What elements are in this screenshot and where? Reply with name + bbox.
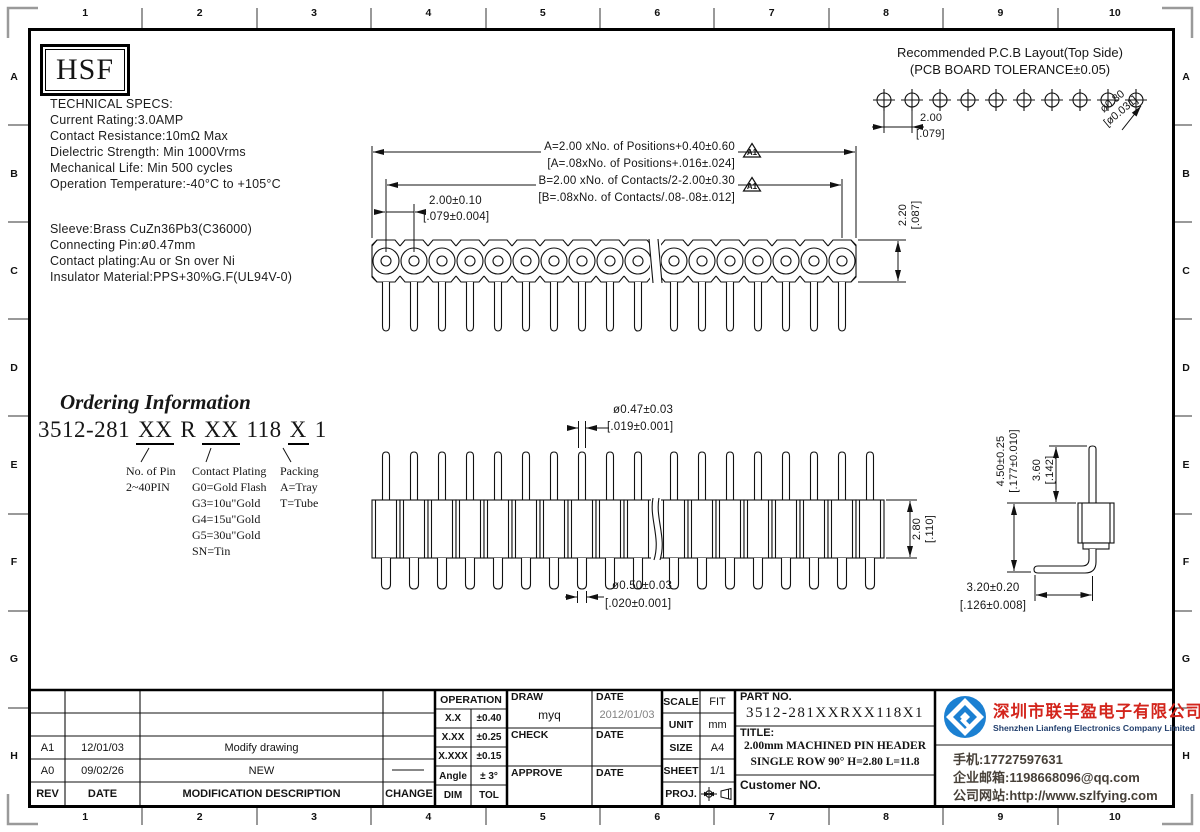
rev-id	[30, 713, 65, 736]
tolerance-title: OPERATION	[435, 690, 507, 709]
spec-line: Mechanical Life: Min 500 cycles	[50, 160, 281, 176]
company-name-cn: 深圳市联丰盈电子有限公司	[993, 698, 1200, 722]
zone-label: 9	[943, 807, 1057, 827]
zone-label: D	[1175, 319, 1197, 416]
company-name-en: Shenzhen Lianfeng Electronics Company Li…	[993, 723, 1195, 733]
zone-label: 6	[600, 807, 714, 827]
rev-date: 12/01/03	[65, 736, 140, 759]
tolerance-value: ± 3°	[471, 767, 507, 786]
rev-change	[383, 759, 435, 782]
pin-dia-dim-inch: [.019±0.001]	[607, 421, 673, 433]
specs-lines: Current Rating:3.0AMPContact Resistance:…	[50, 112, 281, 192]
title-label: TITLE:	[740, 727, 774, 739]
draw-date-value: 2012/01/03	[592, 703, 662, 727]
zone-label: C	[1175, 222, 1197, 319]
zone-label: 5	[486, 807, 600, 827]
rev-header-cell: MODIFICATION DESCRIPTION	[140, 782, 383, 805]
zone-label: 9	[943, 3, 1057, 23]
zone-label: F	[3, 514, 25, 611]
tolerance-dim: X.XX	[435, 728, 471, 747]
code-packing: X	[288, 417, 309, 445]
rev-description	[140, 713, 383, 736]
tolerance-value: TOL	[471, 786, 507, 805]
zone-label: E	[1175, 417, 1197, 514]
company-website: 公司网站:http://www.szlfying.com	[953, 785, 1158, 804]
rev-header-cell: REV	[30, 782, 65, 805]
zone-numbers-top: 12345678910	[28, 3, 1172, 23]
technical-specs: TECHNICAL SPECS: Current Rating:3.0AMPCo…	[50, 96, 281, 192]
packing-option: A=Tray	[280, 479, 319, 495]
size-label: SIZE	[662, 736, 700, 759]
svg-text:A1: A1	[747, 182, 758, 191]
rev-flag-b: A1	[742, 176, 762, 193]
rev-description: NEW	[140, 759, 383, 782]
specs-title: TECHNICAL SPECS:	[50, 96, 281, 112]
pin-count-legend: No. of Pin 2~40PIN	[126, 463, 176, 495]
customer-no-label: Customer NO.	[740, 778, 821, 792]
body-height-dim: 2.20 [.087]	[895, 189, 925, 241]
zone-label: 8	[829, 3, 943, 23]
plating-option: G5=30u"Gold	[192, 527, 266, 543]
zone-label: A	[3, 28, 25, 125]
plating-option: G0=Gold Flash	[192, 479, 266, 495]
zone-numbers-bottom: 12345678910	[28, 807, 1172, 827]
rev-description: Modify drawing	[140, 736, 383, 759]
zone-letters-left: ABCDEFGH	[3, 28, 25, 805]
rev-change	[383, 713, 435, 736]
tolerance-value: ±0.25	[471, 728, 507, 747]
rev-date	[65, 713, 140, 736]
approve-label: APPROVE	[511, 767, 562, 779]
rev-date	[65, 690, 140, 713]
spec-line: Operation Temperature:-40°C to +105°C	[50, 176, 281, 192]
rev-header-cell: DATE	[65, 782, 140, 805]
leg-length-dim-inch: [.126±0.008]	[941, 600, 1045, 612]
projection-label: PROJ.	[662, 782, 700, 805]
rev-id: A1	[30, 736, 65, 759]
rev-id	[30, 690, 65, 713]
company-phone: 手机:17727597631	[953, 749, 1063, 768]
spec-line: Current Rating:3.0AMP	[50, 112, 281, 128]
zone-label: 3	[257, 807, 371, 827]
zone-label: 5	[486, 3, 600, 23]
part-no-value: 3512-281XXRXX118X1	[735, 701, 935, 725]
spec-line: Dielectric Strength: Min 1000Vrms	[50, 144, 281, 160]
zone-label: 1	[28, 3, 142, 23]
draw-value: myq	[507, 703, 592, 727]
dim-a-formula-inch: [A=.08xNo. of Positions+.016±.024]	[544, 156, 738, 173]
zone-label: B	[1175, 125, 1197, 222]
projection-symbol	[700, 782, 735, 805]
sheet-label: SHEET	[662, 759, 700, 782]
hsf-logo-box: HSF	[40, 44, 130, 96]
part-title-line1: 2.00mm MACHINED PIN HEADER	[735, 739, 935, 753]
zone-label: 6	[600, 3, 714, 23]
rev-description	[140, 690, 383, 713]
draw-date-label: DATE	[596, 691, 624, 703]
tolerance-dim: Angle	[435, 767, 471, 786]
rev-change	[383, 736, 435, 759]
zone-label: A	[1175, 28, 1197, 125]
tolerance-dim: X.X	[435, 709, 471, 728]
dim-a-formula: A=2.00 xNo. of Positions+0.40±0.60	[541, 139, 738, 156]
revision-table: A1 12/01/03 Modify drawing A0 09/02/26 N…	[30, 690, 435, 782]
rev-change	[383, 690, 435, 713]
engineering-drawing-sheet: { "border": { "cols": ["1","2","3","4","…	[0, 0, 1200, 832]
sheet-value: 1/1	[700, 759, 735, 782]
zone-label: 4	[371, 3, 485, 23]
packing-option: T=Tube	[280, 495, 319, 511]
plating-option: G3=10u"Gold	[192, 495, 266, 511]
pcb-pitch-dim-inch: [.079]	[916, 128, 945, 140]
tail-dia-dim-inch: [.020±0.001]	[605, 598, 671, 610]
plating-option: SN=Tin	[192, 543, 266, 559]
packing-legend: Packing A=TrayT=Tube	[280, 463, 319, 511]
ordering-title: Ordering Information	[60, 390, 251, 415]
pitch-dim-inch: [.079±0.004]	[423, 211, 489, 223]
hsf-logo-text: HSF	[56, 53, 114, 87]
material-line: Sleeve:Brass CuZn36Pb3(C36000)	[50, 221, 292, 237]
zone-label: 3	[257, 3, 371, 23]
code-prefix: 3512-281	[38, 417, 130, 442]
revision-table-header: REVDATEMODIFICATION DESCRIPTIONCHANGE	[30, 782, 435, 805]
plating-legend: Contact Plating G0=Gold FlashG3=10u"Gold…	[192, 463, 266, 559]
company-logo-icon	[941, 693, 989, 741]
zone-label: 1	[28, 807, 142, 827]
zone-label: 10	[1058, 3, 1172, 23]
material-line: Contact plating:Au or Sn over Ni	[50, 253, 292, 269]
scale-label: SCALE	[662, 690, 700, 713]
total-height-dim: 4.50±0.25 [.177±0.010]	[993, 415, 1023, 507]
pitch-dim: 2.00±0.10	[429, 195, 482, 207]
approve-date-label: DATE	[596, 767, 624, 779]
code-pin-count: XX	[136, 417, 174, 445]
dim-b-formula-inch: [B=.08xNo. of Contacts/.08-.08±.012]	[535, 190, 738, 207]
leg-length-dim: 3.20±0.20	[947, 582, 1039, 594]
company-email: 企业邮箱:1198668096@qq.com	[953, 767, 1140, 786]
check-label: CHECK	[511, 729, 548, 741]
zone-label: F	[1175, 514, 1197, 611]
rev-header-cell: CHANGE	[383, 782, 435, 805]
zone-label: G	[3, 611, 25, 708]
code-mid: R	[180, 417, 196, 442]
svg-text:A1: A1	[747, 148, 758, 157]
zone-label: 8	[829, 807, 943, 827]
zone-label: D	[3, 319, 25, 416]
pin-dia-dim: ø0.47±0.03	[613, 404, 673, 416]
spec-line: Contact Resistance:10mΩ Max	[50, 128, 281, 144]
tolerance-dim: DIM	[435, 786, 471, 805]
unit-label: UNIT	[662, 713, 700, 736]
ordering-code: 3512-281XXRXX118X1	[38, 417, 333, 443]
zone-label: C	[3, 222, 25, 319]
zone-label: 10	[1058, 807, 1172, 827]
draw-label: DRAW	[511, 691, 543, 703]
material-line: Insulator Material:PPS+30%G.F(UL94V-0)	[50, 269, 292, 285]
tolerance-value: ±0.40	[471, 709, 507, 728]
rev-date: 09/02/26	[65, 759, 140, 782]
tail-dia-dim: ø0.50±0.03	[612, 580, 672, 592]
material-specs: Sleeve:Brass CuZn36Pb3(C36000)Connecting…	[50, 221, 292, 285]
zone-letters-right: ABCDEFGH	[1175, 28, 1197, 805]
zone-label: G	[1175, 611, 1197, 708]
check-date-label: DATE	[596, 729, 624, 741]
tolerance-value: ±0.15	[471, 747, 507, 766]
tolerance-table: X.X ±0.40 X.XX ±0.25 X.XXX ±0.15 Angle ±…	[435, 709, 507, 805]
zone-label: 2	[142, 3, 256, 23]
part-title-line2: SINGLE ROW 90° H=2.80 L=11.8	[735, 755, 935, 769]
formula-dims: A=2.00 xNo. of Positions+0.40±0.60 [A=.0…	[490, 139, 738, 207]
code-series: 118	[246, 417, 281, 442]
code-suffix: 1	[315, 417, 327, 442]
zone-label: E	[3, 417, 25, 514]
zone-label: 4	[371, 807, 485, 827]
code-plating: XX	[202, 417, 240, 445]
scale-value: FIT	[700, 690, 735, 713]
rev-flag-a: A1	[742, 142, 762, 159]
third-angle-projection-icon	[701, 786, 735, 802]
unit-value: mm	[700, 713, 735, 736]
zone-label: H	[3, 708, 25, 805]
tolerance-dim: X.XXX	[435, 747, 471, 766]
pcb-layout-subtitle: (PCB BOARD TOLERANCE±0.05)	[875, 62, 1145, 77]
zone-label: 2	[142, 807, 256, 827]
rev-id: A0	[30, 759, 65, 782]
zone-label: 7	[714, 807, 828, 827]
size-value: A4	[700, 736, 735, 759]
material-line: Connecting Pin:ø0.47mm	[50, 237, 292, 253]
pcb-layout-title: Recommended P.C.B Layout(Top Side)	[875, 45, 1145, 60]
zone-label: 7	[714, 3, 828, 23]
pcb-pitch-dim: 2.00	[920, 112, 942, 124]
dim-b-formula: B=2.00 xNo. of Contacts/2-2.00±0.30	[536, 173, 738, 190]
plating-option: G4=15u"Gold	[192, 511, 266, 527]
body-thickness-dim: 2.80 [.110]	[909, 501, 939, 557]
pin-height-dim: 3.60 [.142]	[1030, 442, 1058, 498]
zone-label: B	[3, 125, 25, 222]
